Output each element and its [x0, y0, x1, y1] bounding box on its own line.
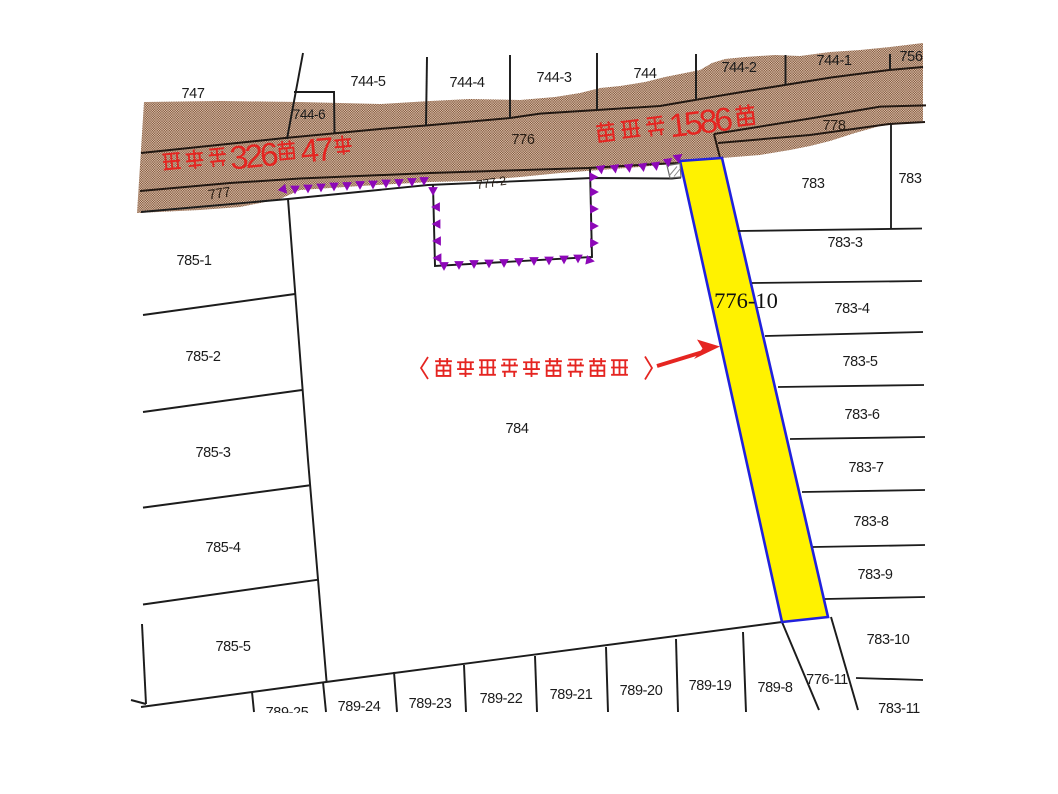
- svg-text:785-4: 785-4: [205, 540, 240, 556]
- svg-text:785-3: 785-3: [195, 445, 230, 461]
- svg-text:785-5: 785-5: [215, 639, 250, 655]
- svg-text:744-1: 744-1: [816, 53, 851, 69]
- svg-text:776-11: 776-11: [806, 672, 848, 688]
- svg-text:756: 756: [900, 49, 923, 65]
- svg-text:785-2: 785-2: [185, 349, 220, 365]
- svg-text:783-9: 783-9: [857, 567, 892, 583]
- svg-text:747: 747: [182, 86, 205, 102]
- svg-text:783-8: 783-8: [853, 514, 888, 530]
- svg-text:776-10: 776-10: [714, 288, 778, 313]
- svg-text:744-5: 744-5: [350, 74, 385, 90]
- svg-text:783-3: 783-3: [827, 235, 862, 251]
- svg-text:778: 778: [823, 118, 846, 134]
- svg-text:789-8: 789-8: [757, 680, 792, 696]
- svg-text:783: 783: [899, 171, 922, 187]
- svg-text:744-6: 744-6: [293, 107, 326, 122]
- svg-text:789-19: 789-19: [689, 678, 732, 694]
- svg-text:47: 47: [299, 130, 334, 170]
- svg-text:783-10: 783-10: [867, 632, 910, 648]
- svg-text:789-24: 789-24: [338, 699, 381, 715]
- svg-text:789-21: 789-21: [550, 687, 593, 703]
- svg-text:783-5: 783-5: [842, 354, 877, 370]
- svg-text:785-1: 785-1: [176, 253, 211, 269]
- svg-text:744-2: 744-2: [721, 60, 756, 76]
- svg-text:744-3: 744-3: [536, 70, 571, 86]
- svg-text:789-22: 789-22: [480, 691, 523, 707]
- svg-text:326: 326: [228, 135, 279, 176]
- svg-text:789-23: 789-23: [409, 696, 452, 712]
- svg-text:783-11: 783-11: [878, 701, 920, 717]
- svg-text:1586: 1586: [667, 100, 734, 144]
- svg-text:776: 776: [512, 132, 535, 148]
- svg-text:783: 783: [802, 176, 825, 192]
- svg-text:744: 744: [634, 66, 657, 82]
- svg-text:783-7: 783-7: [848, 460, 883, 476]
- svg-text:784: 784: [506, 421, 529, 437]
- svg-text:789-20: 789-20: [620, 683, 663, 699]
- svg-text:783-4: 783-4: [834, 301, 869, 317]
- svg-text:783-6: 783-6: [844, 407, 879, 423]
- svg-text:744-4: 744-4: [449, 75, 484, 91]
